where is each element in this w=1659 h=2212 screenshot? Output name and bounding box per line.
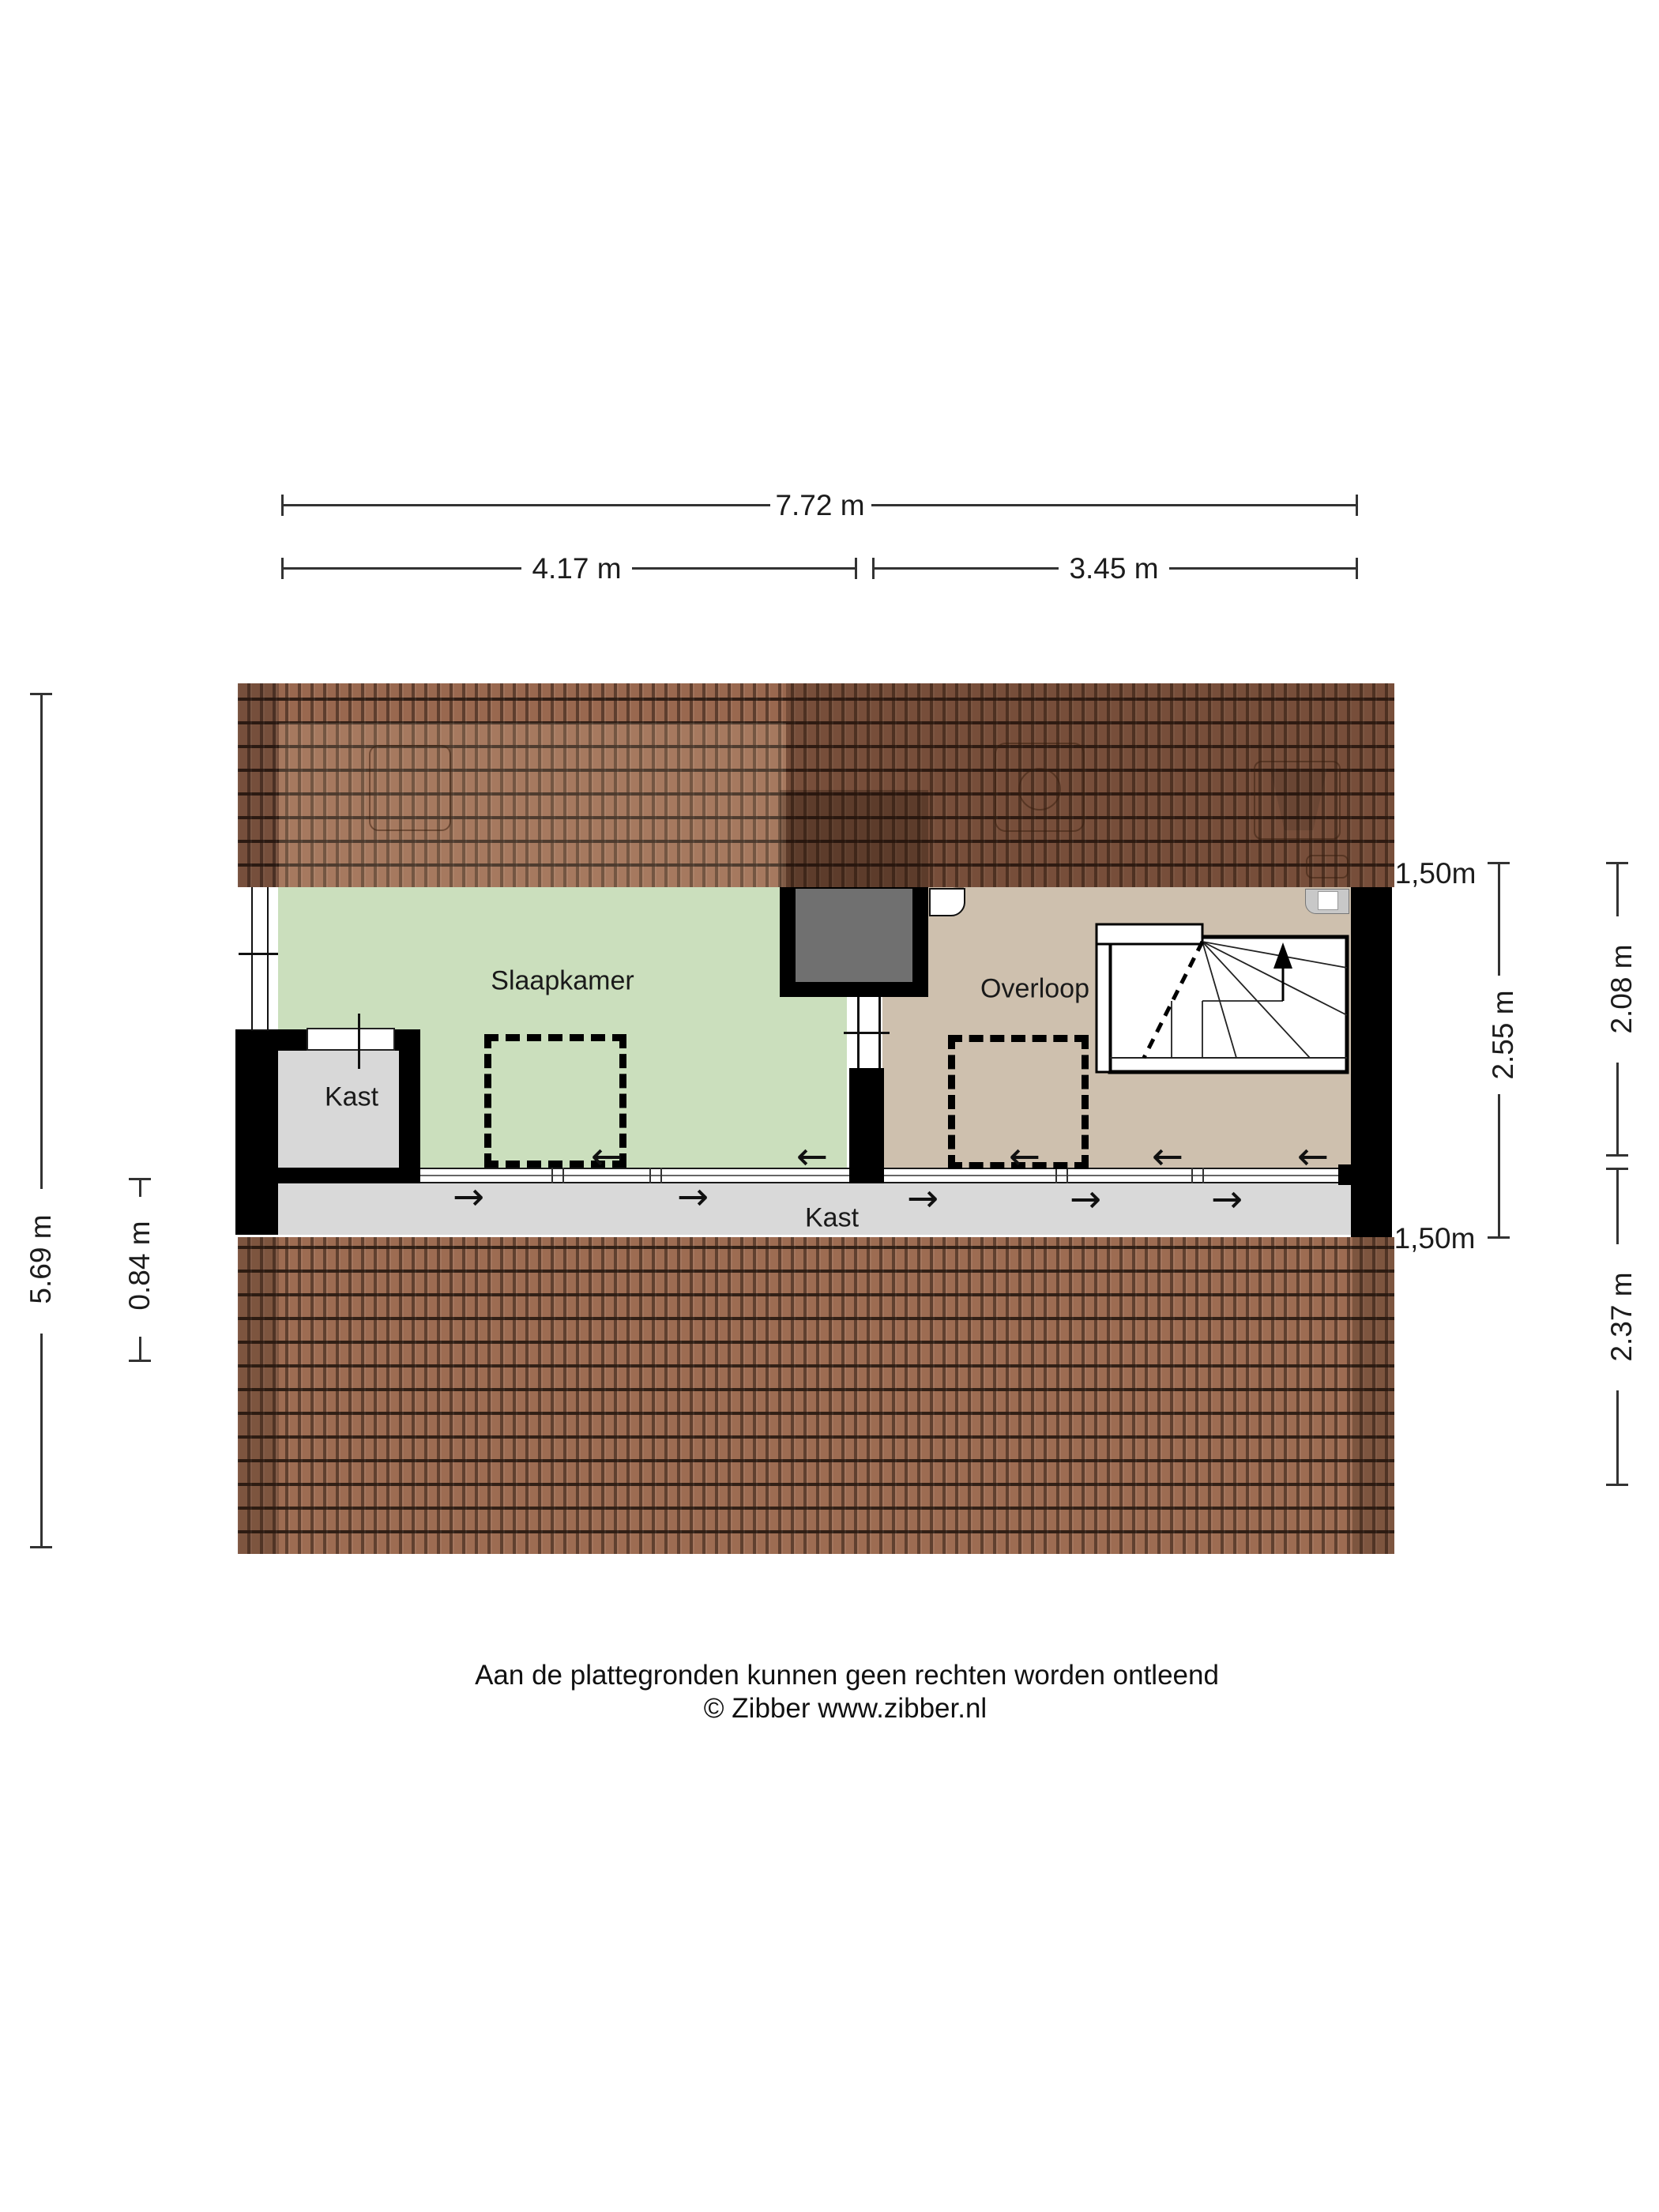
footer-disclaimer: Aan de plattegronden kunnen geen rechten…: [475, 1660, 1219, 1691]
shower-drain-outline: [1018, 768, 1061, 811]
dim-tick: [129, 1360, 151, 1362]
roof-edge-shade: [238, 1237, 279, 1554]
arrow-left-icon: ←: [591, 1138, 623, 1176]
left-wall-window: [251, 886, 269, 1031]
dim-width-left-line-b: [632, 567, 857, 570]
chimney-shadow: [780, 790, 928, 887]
dim-tick: [855, 558, 857, 579]
toilet-bowl-outline: [1271, 772, 1326, 830]
roof-edge-shade: [238, 683, 279, 887]
dim-width-right-label: 3.45 m: [1069, 552, 1158, 585]
mid-window-tick: [844, 1032, 890, 1034]
label-overloop: Overloop: [980, 974, 1089, 1005]
dim-lower-depth-label: 2.37 m: [1605, 1272, 1638, 1361]
arrow-right-icon: →: [1070, 1180, 1101, 1218]
stairwell-outline: [1110, 937, 1347, 1072]
stair-landing: [1097, 924, 1202, 944]
roof-top-band: [238, 683, 1394, 887]
arrow-right-icon: →: [677, 1178, 709, 1216]
arrow-left-icon: ←: [1152, 1138, 1183, 1176]
arrow-left-icon: ←: [1009, 1138, 1040, 1176]
dim-tick: [1356, 558, 1358, 579]
dim-total-height-line-a: [40, 694, 43, 1189]
floorplan-canvas: 7.72 m 4.17 m 3.45 m 5.69 m 0.84 m 1,50m…: [0, 0, 1659, 2212]
staircase: [1094, 919, 1355, 1077]
label-kast-closet: Kast: [325, 1082, 378, 1113]
dim-height-offset-label: 0.84 m: [123, 1221, 156, 1310]
dim-tick: [281, 558, 284, 579]
dim-width-right-line-a: [873, 567, 1059, 570]
radiator-fixture-inner: [1318, 891, 1338, 910]
arrow-left-icon: ←: [796, 1138, 828, 1176]
dim-room-depth-line-a: [1498, 863, 1500, 976]
dim-tick: [872, 558, 875, 579]
footer-credit: © Zibber www.zibber.nl: [704, 1693, 987, 1725]
dim-lower-depth-line-a: [1616, 1169, 1619, 1244]
overloop-door-leaf: [929, 888, 965, 916]
dim-tick: [281, 495, 284, 516]
window-junction: [660, 1168, 662, 1183]
dim-total-width-line-right: [871, 504, 1358, 506]
window-junction: [1055, 1168, 1057, 1183]
arrow-right-icon: →: [453, 1178, 484, 1216]
dim-tick: [1606, 1168, 1628, 1170]
dim-room-depth-label: 2.55 m: [1487, 990, 1520, 1079]
dim-tick: [1488, 1236, 1510, 1239]
arrow-left-icon: ←: [1297, 1138, 1329, 1176]
dim-upper-depth-label: 2.08 m: [1605, 944, 1638, 1033]
label-kast-strip: Kast: [805, 1203, 859, 1234]
closet-door: [307, 1028, 395, 1051]
dim-width-left-label: 4.17 m: [532, 552, 621, 585]
shower-outline: [995, 743, 1085, 832]
chimney-core: [796, 889, 912, 982]
stair-stringer: [1097, 944, 1110, 1072]
dim-upper-depth-line-b: [1616, 1063, 1619, 1156]
window-junction: [1191, 1168, 1193, 1183]
closet-door-centerline: [358, 1014, 360, 1069]
left-wall-lower: [235, 1183, 278, 1235]
dim-width-left-line-a: [282, 567, 521, 570]
dim-room-depth-line-b: [1498, 1094, 1500, 1238]
dim-total-height-line-b: [40, 1334, 43, 1548]
dim-tick: [129, 1178, 151, 1180]
fixture-outline: [1306, 855, 1349, 878]
skylight-outline: [369, 745, 451, 831]
roof-bottom-band: [238, 1237, 1394, 1554]
dim-tick: [30, 693, 52, 695]
window-junction: [649, 1168, 651, 1183]
roof-dormer-highlight: [279, 723, 786, 887]
dim-upper-depth-line-a: [1616, 863, 1619, 916]
dim-total-width-label: 7.72 m: [775, 489, 864, 522]
dim-tick: [1356, 495, 1358, 516]
window-junction: [562, 1168, 564, 1183]
window-band-frame-line: [420, 1175, 1351, 1176]
left-window-tick: [239, 953, 278, 955]
dim-tick: [1606, 1484, 1628, 1486]
window-band-end-wall: [1338, 1164, 1351, 1185]
dim-total-height-label: 5.69 m: [24, 1214, 58, 1303]
dim-headroom-top-label: 1,50m: [1395, 857, 1477, 890]
window-junction: [1066, 1168, 1068, 1183]
dim-tick: [1606, 1154, 1628, 1157]
dim-tick: [1606, 862, 1628, 864]
dim-height-offset-line-b: [139, 1337, 141, 1361]
dim-width-right-line-b: [1169, 567, 1358, 570]
dim-tick: [1488, 862, 1510, 864]
window-junction: [551, 1168, 553, 1183]
divider-wall-column: [849, 1068, 884, 1183]
right-wall: [1351, 887, 1392, 1237]
arrow-right-icon: →: [1211, 1180, 1243, 1218]
dim-tick: [30, 1546, 52, 1548]
window-junction: [1202, 1168, 1204, 1183]
dim-headroom-bottom-label: 1,50m: [1394, 1222, 1476, 1255]
dim-height-offset-line-a: [139, 1179, 141, 1197]
arrow-right-icon: →: [907, 1179, 939, 1217]
toilet-outline: [1254, 761, 1341, 840]
dim-lower-depth-line-b: [1616, 1390, 1619, 1485]
label-slaapkamer: Slaapkamer: [491, 966, 634, 997]
roof-edge-shade: [1352, 1237, 1394, 1554]
dim-total-width-line-left: [282, 504, 770, 506]
